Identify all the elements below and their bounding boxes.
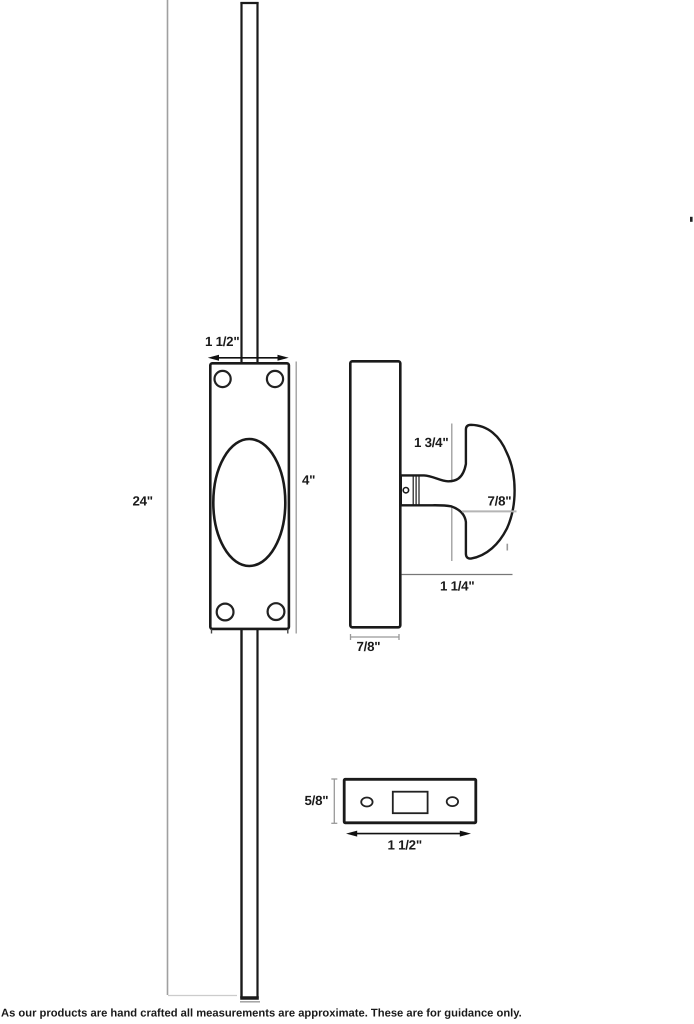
svg-text:1 1/4": 1 1/4"	[440, 579, 474, 594]
svg-text:7/8": 7/8"	[357, 639, 381, 654]
svg-text:7/8": 7/8"	[488, 494, 512, 509]
svg-text:4": 4"	[302, 473, 315, 488]
svg-text:1 1/2": 1 1/2"	[388, 838, 422, 853]
svg-text:24": 24"	[133, 494, 153, 509]
svg-text:1 1/2": 1 1/2"	[205, 334, 239, 349]
svg-text:As our products are hand craft: As our products are hand crafted all mea…	[1, 1008, 522, 1020]
svg-text:5/8": 5/8"	[305, 793, 329, 808]
svg-text:1 3/4": 1 3/4"	[414, 435, 448, 450]
